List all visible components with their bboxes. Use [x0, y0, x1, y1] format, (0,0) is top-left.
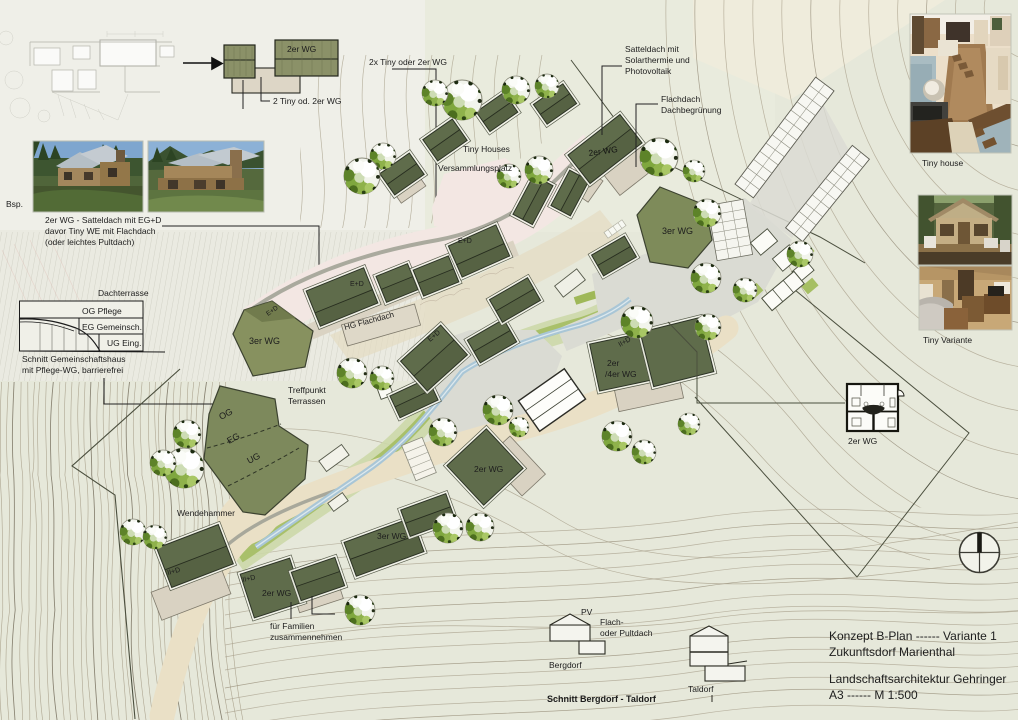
svg-text:E+D: E+D	[458, 238, 472, 245]
svg-text:Treffpunkt: Treffpunkt	[288, 385, 326, 395]
svg-text:Bergdorf: Bergdorf	[549, 660, 582, 670]
svg-text:Zukunftsdorf Marienthal: Zukunftsdorf Marienthal	[829, 645, 955, 659]
svg-text:2er WG: 2er WG	[287, 44, 316, 54]
svg-text:2er: 2er	[607, 358, 619, 368]
svg-text:oder Pultdach: oder Pultdach	[600, 628, 653, 638]
svg-text:E+D: E+D	[350, 281, 364, 288]
svg-text:PV: PV	[581, 607, 593, 617]
svg-text:für Familien: für Familien	[270, 621, 315, 631]
svg-text:Dachterrasse: Dachterrasse	[98, 288, 149, 298]
svg-text:mit Pflege-WG, barrierefrei: mit Pflege-WG, barrierefrei	[22, 365, 123, 375]
svg-text:Satteldach mit: Satteldach mit	[625, 44, 679, 54]
svg-text:Terrassen: Terrassen	[288, 396, 326, 406]
svg-text:3er WG: 3er WG	[662, 226, 693, 236]
svg-text:3er WG: 3er WG	[249, 336, 280, 346]
svg-text:/4er WG: /4er WG	[605, 369, 637, 379]
svg-text:2er WG - Satteldach mit EG+D: 2er WG - Satteldach mit EG+D	[45, 215, 161, 225]
svg-text:zusammennehmen: zusammennehmen	[270, 632, 343, 642]
svg-text:A3 ------ M 1:500: A3 ------ M 1:500	[829, 688, 918, 702]
svg-text:2er WG: 2er WG	[262, 588, 291, 598]
svg-text:2er WG: 2er WG	[848, 436, 877, 446]
svg-text:Taldorf: Taldorf	[688, 684, 714, 694]
svg-text:(oder leichtes Pultdach): (oder leichtes Pultdach)	[45, 237, 134, 247]
svg-text:Wendehammer: Wendehammer	[177, 508, 235, 518]
svg-text:davor Tiny WE mit Flachdach: davor Tiny WE mit Flachdach	[45, 226, 156, 236]
svg-text:Photovoltaik: Photovoltaik	[625, 66, 672, 76]
svg-text:Tiny house: Tiny house	[922, 158, 964, 168]
svg-text:UG Eing.: UG Eing.	[107, 338, 142, 348]
svg-text:Tiny Houses: Tiny Houses	[463, 144, 510, 154]
svg-text:Landschaftsarchitektur Gehring: Landschaftsarchitektur Gehringer	[829, 672, 1006, 686]
svg-text:Tiny Variante: Tiny Variante	[923, 335, 972, 345]
svg-text:Flachdach: Flachdach	[661, 94, 700, 104]
svg-text:3er WG: 3er WG	[377, 531, 406, 541]
svg-text:EG Gemeinsch.: EG Gemeinsch.	[82, 322, 142, 332]
svg-text:2x Tiny oder 2er WG: 2x Tiny oder 2er WG	[369, 57, 447, 67]
svg-text:OG Pflege: OG Pflege	[82, 306, 122, 316]
svg-text:Konzept B-Plan ------ Varian: Konzept B-Plan ------ Variante 1	[829, 629, 997, 643]
svg-text:Schnitt Gemeinschaftshaus: Schnitt Gemeinschaftshaus	[22, 354, 125, 364]
svg-text:Flach-: Flach-	[600, 617, 624, 627]
svg-text:Versammlungsplatz: Versammlungsplatz	[438, 163, 512, 173]
svg-text:Dachbegrünung: Dachbegrünung	[661, 105, 722, 115]
svg-text:2 Tiny od. 2er WG: 2 Tiny od. 2er WG	[273, 96, 342, 106]
svg-text:2er WG: 2er WG	[474, 464, 503, 474]
svg-text:Schnitt Bergdorf - Taldorf: Schnitt Bergdorf - Taldorf	[547, 694, 657, 704]
svg-text:Bsp.: Bsp.	[6, 199, 23, 209]
svg-text:Solarthermie und: Solarthermie und	[625, 55, 690, 65]
